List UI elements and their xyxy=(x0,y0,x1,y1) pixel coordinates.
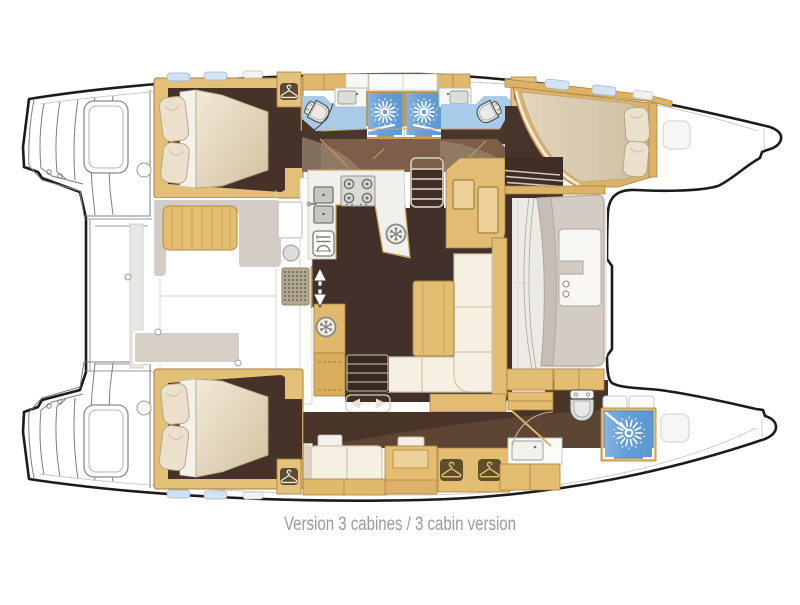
svg-text:Version 3 cabines / 3 cabin ve: Version 3 cabines / 3 cabin version xyxy=(284,514,516,535)
